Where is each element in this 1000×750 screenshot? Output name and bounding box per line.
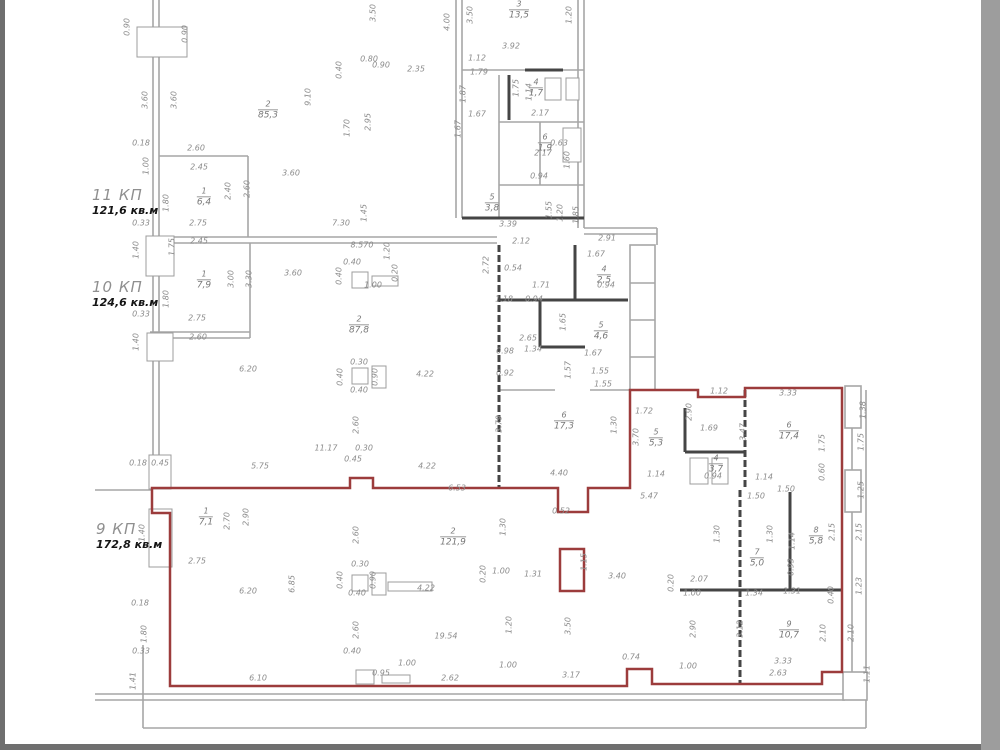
bottom-edge-bar	[0, 744, 1000, 750]
dimension-label: 2.60	[353, 416, 362, 434]
dimension-label: 1.65	[560, 313, 569, 331]
dimension-label: 0.40	[348, 590, 366, 599]
room-area: 85,3	[258, 110, 278, 121]
room-label: 75,0	[750, 547, 764, 568]
dimension-label: 1.00	[364, 282, 382, 291]
dimension-label: 4.00	[444, 13, 453, 31]
dimension-label: 2.70	[224, 512, 233, 530]
dimension-label: 1.31	[783, 588, 801, 597]
apartment-name: 10 КП	[92, 278, 143, 296]
apartment-name: 9 КП	[96, 520, 136, 538]
dimension-label: 7.30	[332, 220, 350, 229]
dimension-label: 1.69	[700, 425, 718, 434]
room-number: 2	[258, 99, 278, 110]
apartment-label: 9 КП172,8 кв.м	[96, 520, 162, 551]
dimension-label: 0.40	[828, 586, 837, 604]
room-label: 61,9	[538, 132, 552, 153]
dimension-label: 1.67	[455, 120, 464, 138]
dimension-label: 2.60	[187, 145, 205, 154]
dimension-label: 2.91	[598, 235, 616, 244]
dimension-label: 3.30	[246, 270, 255, 288]
dimension-label: 5.47	[640, 493, 658, 502]
dimension-label: 0.30	[355, 445, 373, 454]
dimension-label: 0.40	[337, 571, 346, 589]
dimension-label: 2.17	[531, 110, 549, 119]
dimension-label: 3.60	[142, 91, 151, 109]
dimension-label: 1.45	[361, 204, 370, 222]
dimension-label: 2.90	[243, 508, 252, 526]
apartment-label: 10 КП124,6 кв.м	[92, 278, 158, 309]
dimension-label: 1.00	[398, 660, 416, 669]
room-number: 1	[197, 186, 211, 197]
dimension-label: 3.33	[779, 390, 797, 399]
dimension-label: 4.22	[417, 585, 435, 594]
dimension-label: 1.34	[745, 590, 763, 599]
dimension-label: 3.12	[737, 620, 746, 638]
room-label: 287,8	[349, 314, 369, 335]
dimension-label: 3.70	[633, 428, 642, 446]
dimension-label: 5.75	[251, 463, 269, 472]
dimension-label: 4.22	[416, 371, 434, 380]
dimension-label: 2.95	[365, 113, 374, 131]
dimension-label: 4.40	[550, 470, 568, 479]
dimension-label: 0.94	[525, 296, 543, 305]
dimension-label: 3.79	[496, 415, 505, 433]
dimension-label: 0.45	[151, 460, 169, 469]
dimension-label: 2.75	[188, 558, 206, 567]
dimension-label: 0.95	[372, 670, 390, 679]
room-label: 43,7	[709, 453, 723, 474]
dimension-label: 1.15	[581, 553, 590, 571]
room-label: 53,8	[485, 192, 499, 213]
dimension-label: 1.67	[584, 350, 602, 359]
dimension-label: 3.40	[608, 573, 626, 582]
room-label: 617,4	[779, 420, 799, 441]
dimension-label: 2.63	[769, 670, 787, 679]
dimension-label: 0.33	[132, 220, 150, 229]
dimension-label: 0.52	[552, 508, 570, 517]
room-label: 17,1	[199, 506, 213, 527]
room-number: 2	[440, 526, 466, 537]
room-label: 2121,9	[440, 526, 466, 547]
room-number: 1	[197, 269, 211, 280]
dimension-label: 19.54	[435, 633, 458, 642]
room-area: 5,0	[750, 558, 764, 569]
room-label: 313,5	[509, 0, 529, 21]
room-area: 1,9	[538, 143, 552, 154]
dimension-label: 0.40	[336, 267, 345, 285]
room-area: 2,5	[597, 275, 611, 286]
dimension-label: 0.40	[336, 61, 345, 79]
dimension-label: 0.90	[124, 18, 133, 36]
dimension-label: 0.90	[372, 368, 381, 386]
dimension-label: 0.90	[372, 62, 390, 71]
room-area: 87,8	[349, 325, 369, 336]
dimension-label: 1.12	[710, 388, 728, 397]
dimension-label: 1.67	[468, 111, 486, 120]
dimension-label: 0.40	[337, 368, 346, 386]
dimension-label: 1.75	[858, 433, 867, 451]
dimension-label: 2.35	[407, 66, 425, 75]
dimension-label: 2.45	[190, 238, 208, 247]
dimension-label: 1.55	[591, 368, 609, 377]
dimension-label: 1.72	[635, 408, 653, 417]
dimension-label: 6.53	[448, 485, 466, 494]
dimension-label: 3.17	[562, 672, 580, 681]
dimension-label: 0.45	[344, 456, 362, 465]
dimension-label: 1.87	[460, 85, 469, 103]
dimension-label: 2.45	[190, 164, 208, 173]
room-area: 1,7	[529, 88, 543, 99]
dimension-label: 0.33	[132, 311, 150, 320]
apartment-area: 124,6 кв.м	[92, 296, 158, 309]
dimension-label: 3.33	[774, 658, 792, 667]
room-number: 1	[199, 506, 213, 517]
dimension-label: 0.20	[392, 264, 401, 282]
room-number: 3	[509, 0, 529, 10]
room-area: 17,4	[779, 431, 799, 442]
dimension-label: 1.55	[594, 381, 612, 390]
dimension-label: 1.20	[384, 242, 393, 260]
dimension-label: 1.11	[864, 665, 873, 683]
dimension-label: 2.07	[690, 576, 708, 585]
dimension-label: 1.30	[500, 518, 509, 536]
dimension-label: 1.50	[747, 493, 765, 502]
room-label: 85,8	[809, 525, 823, 546]
apartment-name: 11 КП	[92, 186, 143, 204]
dimension-label: 0.90	[370, 571, 379, 589]
dimension-label: 1.75	[513, 79, 522, 97]
dimension-label: 0.63	[550, 140, 568, 149]
dimension-label: 6.10	[249, 675, 267, 684]
dimension-label: 2.62	[441, 675, 459, 684]
dimension-label: 2.15	[829, 523, 838, 541]
room-number: 6	[538, 132, 552, 143]
dimension-label: 1.00	[143, 157, 152, 175]
dimension-label: 1.00	[683, 590, 701, 599]
dimension-label: 3.47	[740, 423, 749, 441]
dimension-label: 1.25	[858, 481, 867, 499]
labels-layer: 0.900.903.603.600.181.002.602.451.802.40…	[0, 0, 1000, 750]
dimension-label: 2.60	[189, 334, 207, 343]
dimension-label: 3.50	[565, 617, 574, 635]
room-number: 5	[485, 192, 499, 203]
dimension-label: 3.50	[370, 4, 379, 22]
dimension-label: 2.12	[512, 238, 530, 247]
dimension-label: 1.60	[564, 151, 573, 169]
dimension-label: 1.79	[470, 69, 488, 78]
dimension-label: 0.30	[351, 561, 369, 570]
dimension-label: 1.31	[524, 571, 542, 580]
room-label: 41,7	[529, 77, 543, 98]
dimension-label: 1.50	[777, 486, 795, 495]
dimension-label: 3.00	[228, 270, 237, 288]
dimension-label: 1.30	[714, 525, 723, 543]
floor-plan-canvas: 0.900.903.603.600.181.002.602.451.802.40…	[0, 0, 1000, 750]
dimension-label: 0.20	[668, 574, 677, 592]
dimension-label: 1.23	[856, 577, 865, 595]
dimension-label: 2.60	[353, 526, 362, 544]
dimension-label: 6.20	[239, 366, 257, 375]
dimension-label: 1.85	[573, 206, 582, 224]
room-area: 5,8	[809, 536, 823, 547]
dimension-label: 0.33	[132, 648, 150, 657]
dimension-label: 3.92	[502, 43, 520, 52]
room-label: 617,3	[554, 410, 574, 431]
room-area: 3,8	[485, 203, 499, 214]
dimension-label: 0.18	[131, 600, 149, 609]
dimension-label: 2.90	[690, 620, 699, 638]
dimension-label: 2.40	[225, 182, 234, 200]
room-area: 4,6	[594, 331, 608, 342]
dimension-label: 1.40	[133, 333, 142, 351]
dimension-label: 1.55	[546, 201, 555, 219]
dimension-label: 1.20	[566, 6, 575, 24]
room-area: 121,9	[440, 537, 466, 548]
room-area: 6,4	[197, 197, 211, 208]
room-area: 17,3	[554, 421, 574, 432]
room-label: 17,9	[197, 269, 211, 290]
room-number: 6	[779, 420, 799, 431]
room-label: 54,6	[594, 320, 608, 341]
dimension-label: 1.00	[492, 568, 510, 577]
room-label: 55,3	[649, 427, 663, 448]
room-number: 7	[750, 547, 764, 558]
dimension-label: 1.18	[495, 296, 513, 305]
dimension-label: 1.75	[169, 238, 178, 256]
dimension-label: 2.72	[483, 256, 492, 274]
room-label: 910,7	[779, 619, 799, 640]
dimension-label: 0.98	[496, 348, 514, 357]
dimension-label: 0.92	[496, 370, 514, 379]
room-number: 2	[349, 314, 369, 325]
dimension-label: 1.20	[557, 204, 566, 222]
room-number: 4	[709, 453, 723, 464]
dimension-label: 1.41	[130, 672, 139, 690]
dimension-label: 3.60	[282, 170, 300, 179]
dimension-label: 2.15	[856, 523, 865, 541]
room-label: 42,5	[597, 264, 611, 285]
dimension-label: 1.12	[468, 55, 486, 64]
dimension-label: 6.85	[289, 575, 298, 593]
dimension-label: 1.80	[141, 625, 150, 643]
dimension-label: 2.65	[519, 335, 537, 344]
dimension-label: 8.570	[351, 242, 374, 251]
dimension-label: 11.17	[315, 445, 338, 454]
dimension-label: 1.30	[611, 416, 620, 434]
room-number: 4	[529, 77, 543, 88]
dimension-label: 3.39	[499, 221, 517, 230]
left-edge-bar	[0, 0, 5, 750]
dimension-label: 1.57	[565, 361, 574, 379]
dimension-label: 1.40	[133, 241, 142, 259]
room-area: 10,7	[779, 630, 799, 641]
dimension-label: 0.20	[480, 565, 489, 583]
dimension-label: 1.00	[679, 663, 697, 672]
dimension-label: 2.10	[820, 624, 829, 642]
room-area: 5,3	[649, 438, 663, 449]
dimension-label: 0.94	[530, 173, 548, 182]
room-number: 6	[554, 410, 574, 421]
dimension-label: 1.71	[532, 282, 550, 291]
dimension-label: 1.30	[767, 525, 776, 543]
dimension-label: 2.75	[188, 315, 206, 324]
room-number: 8	[809, 525, 823, 536]
room-number: 9	[779, 619, 799, 630]
dimension-label: 1.14	[789, 532, 798, 550]
dimension-label: 1.14	[647, 471, 665, 480]
room-area: 7,9	[197, 280, 211, 291]
dimension-label: 2.10	[848, 624, 857, 642]
dimension-label: 2.75	[189, 220, 207, 229]
room-label: 16,4	[197, 186, 211, 207]
room-number: 4	[597, 264, 611, 275]
dimension-label: 2.60	[244, 180, 253, 198]
room-number: 5	[649, 427, 663, 438]
dimension-label: 0.74	[622, 654, 640, 663]
dimension-label: 1.34	[524, 346, 542, 355]
dimension-label: 1.20	[506, 616, 515, 634]
dimension-label: 0.18	[129, 460, 147, 469]
dimension-label: 1.14	[755, 474, 773, 483]
dimension-label: 1.80	[163, 290, 172, 308]
dimension-label: 2.90	[686, 403, 695, 421]
dimension-label: 1.70	[344, 119, 353, 137]
room-area: 3,7	[709, 464, 723, 475]
dimension-label: 3.60	[284, 270, 302, 279]
room-area: 13,5	[509, 10, 529, 21]
dimension-label: 3.60	[171, 91, 180, 109]
dimension-label: 0.40	[350, 387, 368, 396]
apartment-area: 121,6 кв.м	[92, 204, 158, 217]
room-area: 7,1	[199, 517, 213, 528]
dimension-label: 0.90	[182, 25, 191, 43]
dimension-label: 0.93	[788, 558, 797, 576]
dimension-label: 0.40	[343, 259, 361, 268]
apartment-label: 11 КП121,6 кв.м	[92, 186, 158, 217]
dimension-label: 0.54	[504, 265, 522, 274]
dimension-label: 1.75	[819, 434, 828, 452]
dimension-label: 1.38	[860, 401, 869, 419]
dimension-label: 1.67	[587, 251, 605, 260]
room-label: 285,3	[258, 99, 278, 120]
right-edge-bar	[981, 0, 1000, 750]
room-number: 5	[594, 320, 608, 331]
dimension-label: 3.50	[467, 6, 476, 24]
dimension-label: 2.60	[353, 621, 362, 639]
dimension-label: 6.20	[239, 588, 257, 597]
dimension-label: 9.10	[305, 88, 314, 106]
dimension-label: 1.00	[499, 662, 517, 671]
apartment-area: 172,8 кв.м	[96, 538, 162, 551]
dimension-label: 4.22	[418, 463, 436, 472]
dimension-label: 0.60	[819, 463, 828, 481]
dimension-label: 1.80	[163, 194, 172, 212]
dimension-label: 0.30	[350, 359, 368, 368]
dimension-label: 0.18	[132, 140, 150, 149]
dimension-label: 0.40	[343, 648, 361, 657]
